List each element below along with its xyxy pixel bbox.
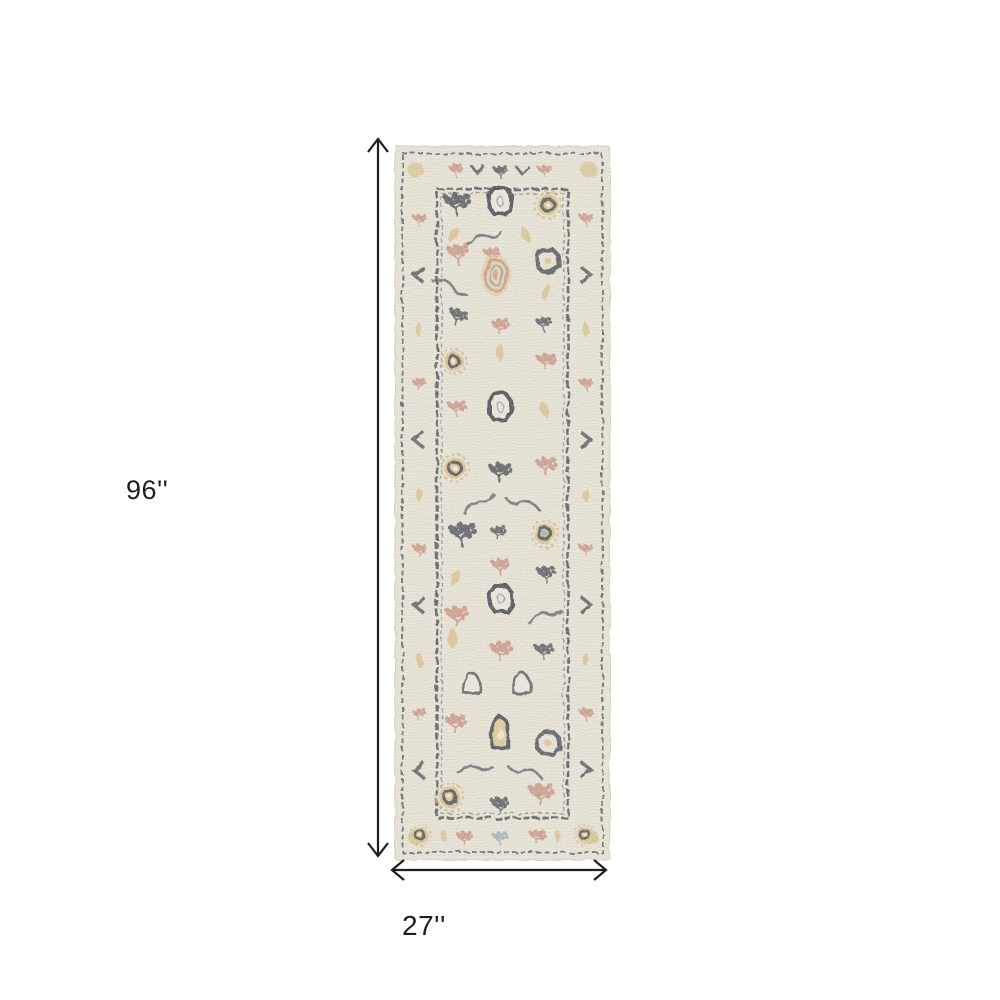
- width-dimension-arrow: [392, 860, 606, 880]
- rug-dimensions-figure: 96'' 27'': [0, 0, 1000, 1000]
- height-dimension-arrow: [368, 139, 388, 856]
- width-dimension-label: 27'': [402, 910, 446, 942]
- height-dimension-label: 96'': [126, 475, 168, 506]
